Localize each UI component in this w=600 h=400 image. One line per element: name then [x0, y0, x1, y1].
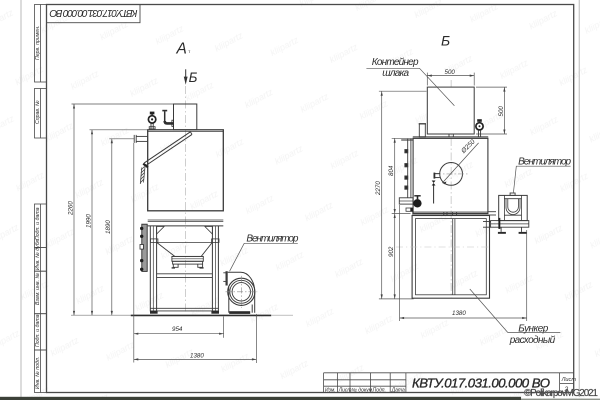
svg-text:2270: 2270 — [375, 181, 382, 196]
svg-text:Инв. № дубл.: Инв. № дубл. — [35, 238, 41, 270]
svg-text:©PolikarpovMG2021: ©PolikarpovMG2021 — [524, 388, 598, 399]
svg-text:Подп. и дата: Подп. и дата — [35, 207, 41, 240]
svg-text:А: А — [176, 41, 187, 58]
svg-text:954: 954 — [172, 326, 183, 333]
svg-text:Изм.: Изм. — [325, 388, 336, 394]
svg-text:Перв. примен.: Перв. примен. — [35, 26, 41, 60]
svg-text:Контейнер: Контейнер — [372, 57, 419, 68]
svg-text:Подп. и дата: Подп. и дата — [35, 314, 41, 347]
svg-text:Б: Б — [441, 32, 450, 48]
svg-text:расходный: расходный — [509, 335, 556, 346]
svg-text:№ докум.: № докум. — [352, 388, 374, 394]
svg-text:КВТУ.017.031.00.000 ВО: КВТУ.017.031.00.000 ВО — [49, 7, 137, 18]
svg-text:Взам. инв. №: Взам. инв. № — [35, 273, 41, 305]
svg-text:1890: 1890 — [105, 220, 112, 234]
svg-text:Лист: Лист — [338, 388, 352, 394]
svg-text:шлака: шлака — [382, 68, 409, 79]
svg-text:2260: 2260 — [67, 201, 74, 216]
svg-text:1990: 1990 — [85, 214, 92, 228]
svg-text:Подп.: Подп. — [373, 388, 386, 394]
svg-text:902: 902 — [388, 246, 395, 257]
svg-text:500: 500 — [445, 69, 456, 76]
svg-text:Лист: Лист — [561, 377, 577, 383]
svg-text:Дата: Дата — [391, 388, 405, 394]
svg-text:500: 500 — [498, 106, 505, 117]
svg-text:Бункер: Бункер — [518, 324, 548, 335]
svg-text:т: т — [188, 49, 190, 54]
svg-text:Вентилятор: Вентилятор — [246, 234, 298, 245]
svg-text:Инв. № подл.: Инв. № подл. — [35, 357, 41, 389]
svg-text:Вентилятор: Вентилятор — [518, 156, 571, 167]
svg-text:1380: 1380 — [452, 310, 466, 317]
svg-text:804: 804 — [388, 165, 395, 176]
svg-text:Б: Б — [189, 70, 198, 85]
svg-text:Справ. №: Справ. № — [35, 100, 41, 124]
svg-text:1380: 1380 — [190, 352, 204, 359]
